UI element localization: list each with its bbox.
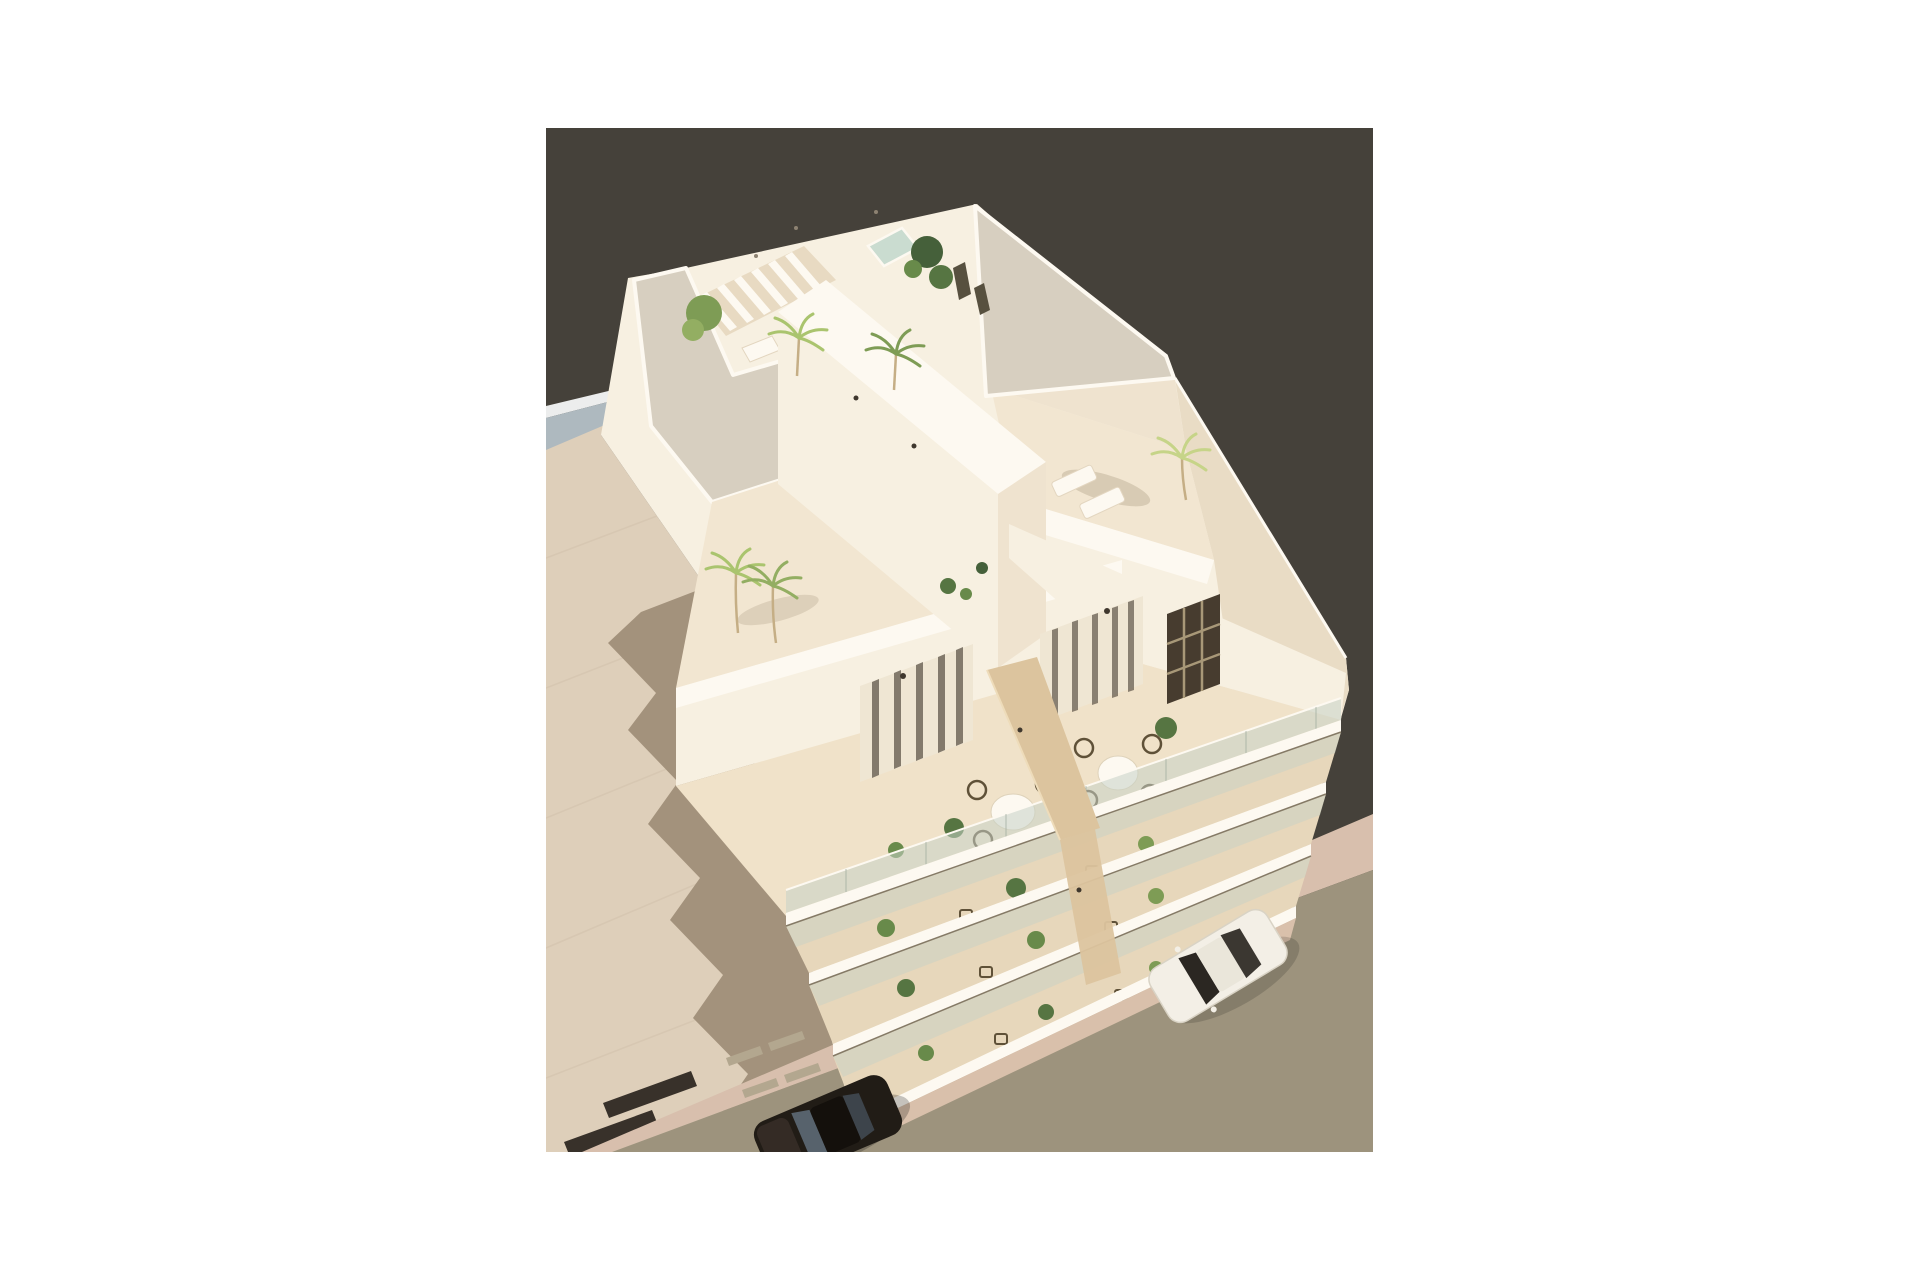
roof-tree-2 bbox=[682, 319, 704, 341]
balcony-plant bbox=[1148, 888, 1164, 904]
balcony-plant bbox=[897, 979, 915, 997]
wall-lamp-2 bbox=[912, 444, 917, 449]
wall-lamp-3 bbox=[900, 673, 906, 679]
wall-lamp-1 bbox=[854, 396, 859, 401]
pool-tree-3 bbox=[904, 260, 922, 278]
cactus-plant-3 bbox=[976, 562, 988, 574]
balcony-plant bbox=[1027, 931, 1045, 949]
render-canvas bbox=[546, 128, 1373, 1152]
page-background bbox=[0, 0, 1920, 1280]
divider-lamp-2 bbox=[1077, 888, 1082, 893]
balcony-plant bbox=[1038, 1004, 1054, 1020]
roof-vent-dot-1 bbox=[794, 226, 798, 230]
roof-vent-dot-3 bbox=[754, 254, 758, 258]
terrace-plant-3 bbox=[1155, 717, 1177, 739]
balcony-plant bbox=[877, 919, 895, 937]
roof-vent-dot-2 bbox=[874, 210, 878, 214]
cactus-plant-1 bbox=[940, 578, 956, 594]
cactus-plant-2 bbox=[960, 588, 972, 600]
wall-lamp-4 bbox=[1104, 608, 1110, 614]
pool-tree-2 bbox=[929, 265, 953, 289]
architectural-render-figure bbox=[546, 128, 1373, 1152]
balcony-plant bbox=[918, 1045, 934, 1061]
divider-lamp-1 bbox=[1018, 728, 1023, 733]
